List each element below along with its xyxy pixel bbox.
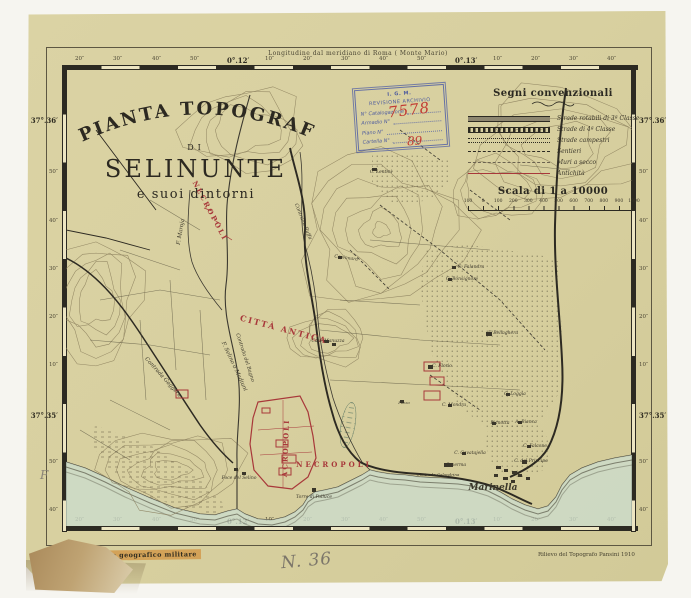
map-label: Marinella: [468, 483, 518, 493]
line-sample-rural: [468, 138, 550, 143]
map-label: Contrada Gaggera: [143, 356, 182, 398]
map-label: C. Falcone: [523, 443, 547, 449]
scale-tick-label: 100: [494, 199, 503, 204]
map-label: Caserma: [446, 462, 467, 468]
scale-tick-label: 1000: [628, 199, 639, 204]
line-sample-road4: [468, 127, 550, 133]
graticule-label: 40″: [28, 507, 58, 513]
scale-tick-label: 300: [524, 199, 533, 204]
graticule-label: 50″: [639, 459, 648, 465]
map-title-arc: PIANTA TOPOGRAFICA: [68, 84, 319, 146]
graticule-label: 30″: [639, 266, 648, 272]
graticule-label: 10″: [28, 362, 58, 368]
line-sample-wall: [468, 162, 550, 163]
graticule-label: 30″: [28, 266, 58, 272]
scale-title: Scala di 1 a 10000: [468, 186, 638, 197]
scale-tick-label: 400: [539, 199, 548, 204]
longitude-edge-label: Longitudine dal meridiano di Roma ( Mont…: [238, 50, 478, 57]
map-label: C. Cavatajella: [454, 450, 486, 456]
map-label: Contrada Galandrina: [417, 472, 460, 477]
line-sample-antiquity: [468, 173, 550, 174]
graticule-label: 37°.36′: [639, 116, 666, 125]
graticule-band-bottom: [62, 526, 638, 531]
handwritten-letter: F: [40, 468, 48, 482]
title-block: PIANTA TOPOGRAFICA DI SELINUNTE e suoi d…: [68, 84, 320, 206]
map-label: A. Bianca: [514, 419, 537, 425]
legend-item: Strade di 4ª Classe: [468, 124, 638, 135]
marsh: [337, 401, 359, 449]
scale-tick-label: 700: [584, 199, 593, 204]
vineyard-stipple: [485, 420, 552, 478]
legend: Segni convenzionali Strade rotabili di 3…: [468, 88, 638, 211]
vineyard-stipple: [372, 152, 452, 205]
map-label: Pianotta: [489, 420, 509, 426]
graticule-label: 40″: [28, 218, 58, 224]
map-title-sub: e suoi dintorni: [137, 187, 255, 202]
map-label: Case Manuzza: [311, 338, 344, 344]
scale-tick-label: 0: [482, 199, 485, 204]
graticule-label: 20″: [28, 314, 58, 320]
map-label: C. Loggia: [504, 391, 526, 397]
map-label: C. Bonsignore: [446, 276, 478, 282]
graticule-label: 37°.35′: [639, 411, 666, 420]
graticule-label: 37°.36′: [28, 116, 58, 125]
map-label: C. Mondra: [442, 402, 466, 408]
map-label: F. Maroja: [176, 218, 187, 246]
scale-tick-label: 100: [464, 199, 473, 204]
map-label: C. del Principe: [514, 458, 548, 464]
map-label: C. Lentini: [370, 169, 393, 175]
photo-background: Longitudine dal meridiano di Roma ( Mont…: [0, 0, 691, 598]
map-label: Foce del Selino: [221, 475, 257, 481]
line-sample-road3: [468, 116, 550, 122]
legend-item: Sentieri: [468, 146, 638, 157]
graticule-label: 50″: [28, 459, 58, 465]
graticule-label: 50″: [28, 169, 58, 175]
handwritten-folder-number: 89: [407, 134, 423, 149]
map-label: C. Florio: [432, 363, 452, 369]
scale-tick-label: 900: [615, 199, 624, 204]
map-label: NECROPOLI: [296, 460, 372, 469]
graticule-label: 10″: [639, 362, 648, 368]
svg-text:PIANTA TOPOGRAFICA: PIANTA TOPOGRAFICA: [68, 84, 319, 146]
flourish-line: [530, 101, 576, 107]
map-label: F. Bellaghera: [487, 330, 518, 336]
stamp-field: Cartella N°: [362, 134, 442, 146]
map-label: Torre di Polluce: [296, 494, 332, 500]
map-label: C. Falandra: [458, 264, 485, 270]
map-label: ACROPOLI: [280, 419, 291, 479]
graticule-label: 50″: [639, 169, 648, 175]
graticule-label: 37°.35′: [28, 411, 58, 420]
legend-item: Strade campestri: [468, 135, 638, 146]
legend-item: Strade rotabili di 3ª Classe: [468, 113, 638, 124]
map-title-di: DI: [187, 143, 205, 152]
scale-tick-label: 500: [554, 199, 563, 204]
scale-tick-label: 600: [569, 199, 578, 204]
map-title-main: SELINUNTE: [105, 155, 287, 183]
scale-bar: 10001002003004005006007008009001000: [468, 199, 638, 211]
legend-item: Muri a secco: [468, 157, 638, 168]
graticule-label: 40″: [639, 507, 648, 513]
legend-item: Antichità: [468, 168, 638, 179]
map-label: Pozzo: [397, 400, 410, 405]
graticule-label: 20″: [639, 314, 648, 320]
graticule-label: 40″: [639, 218, 648, 224]
line-sample-path: [468, 151, 550, 152]
scale-tick-label: 800: [600, 199, 609, 204]
surveyor-credit: Rilievo del Topografo Pansini 1910: [538, 552, 656, 558]
scale-tick-label: 200: [509, 199, 518, 204]
legend-title: Segni convenzionali: [468, 88, 638, 99]
